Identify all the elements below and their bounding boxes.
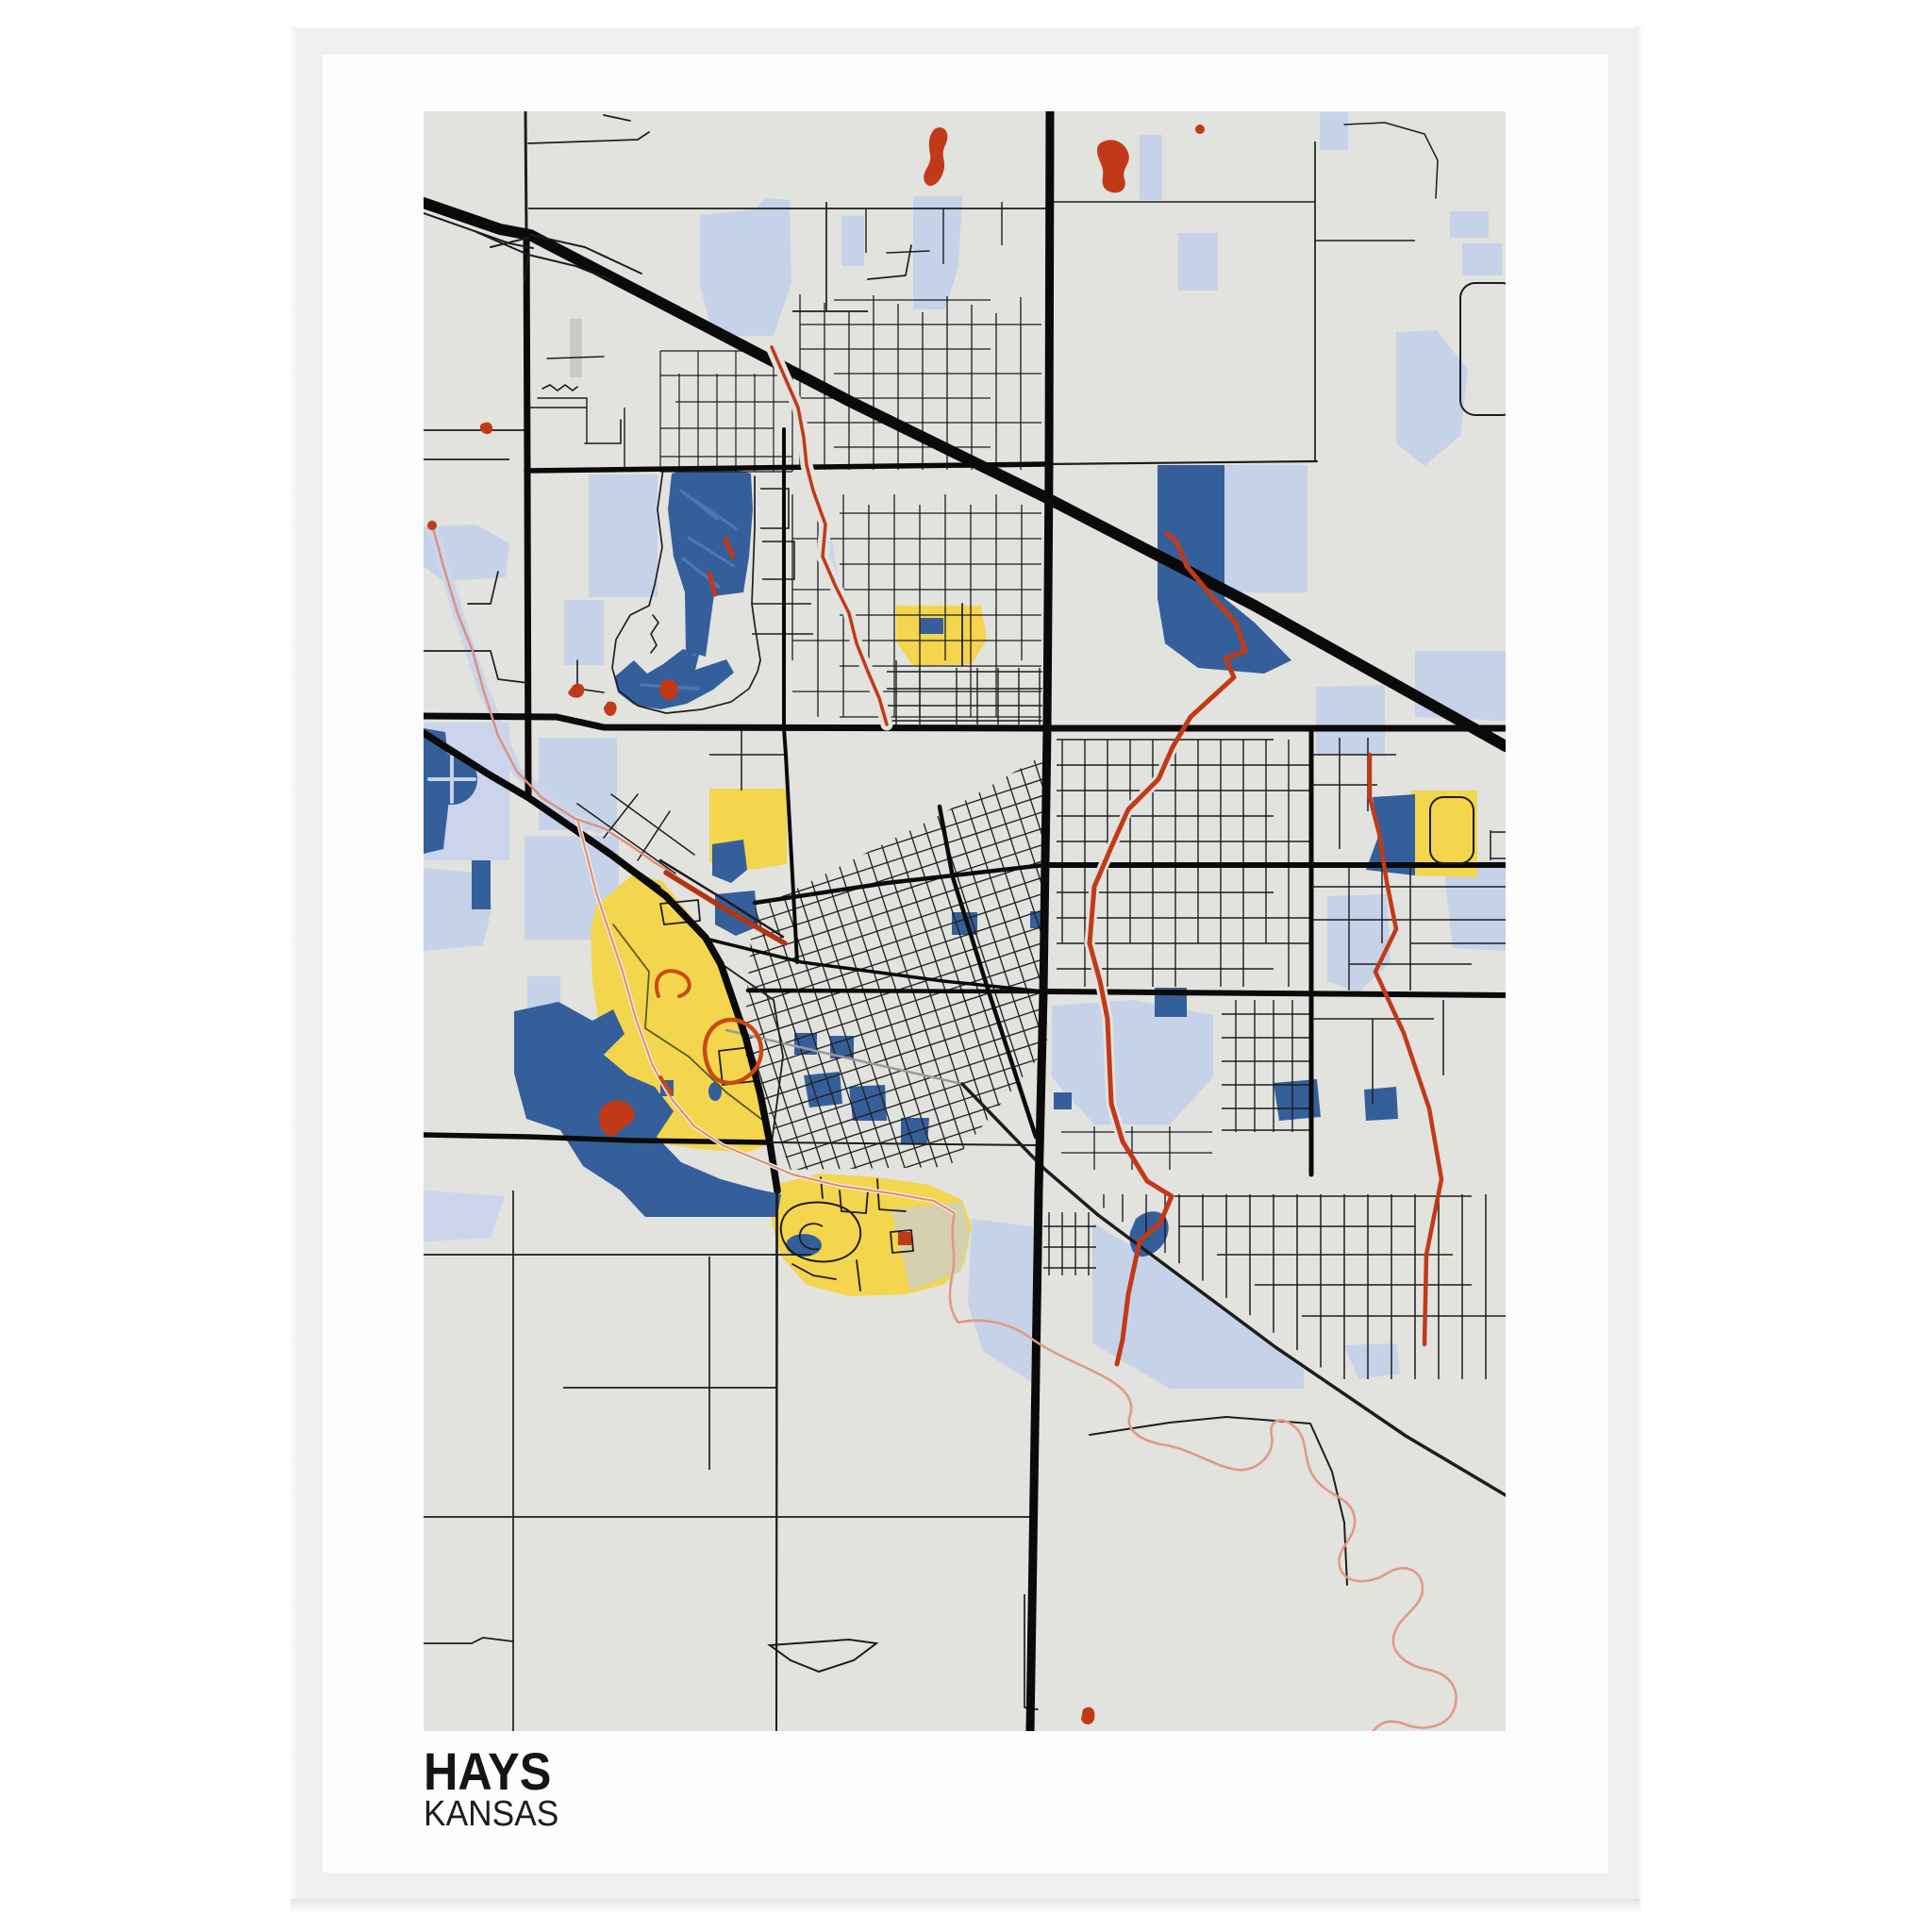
svg-text:KANSAS: KANSAS xyxy=(424,1793,558,1833)
